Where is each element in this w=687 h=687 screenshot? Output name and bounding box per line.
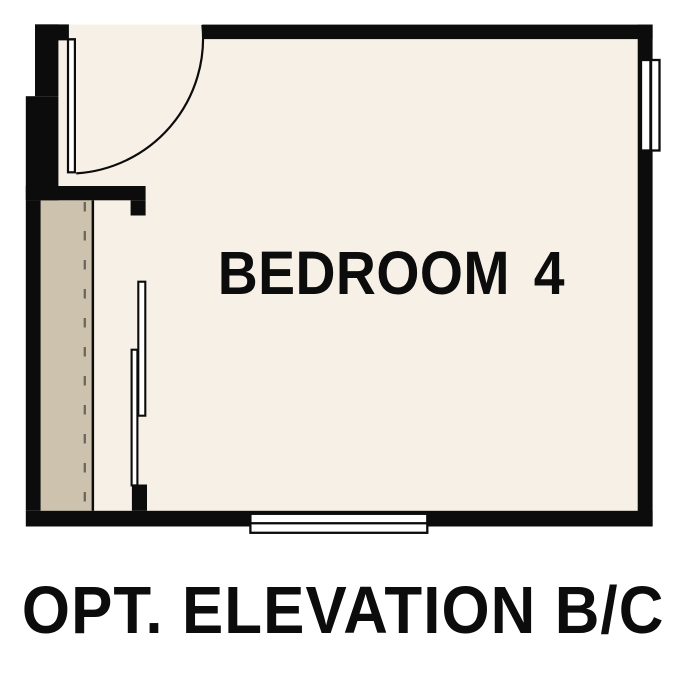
svg-text:OPT. ELEVATION B/C: OPT. ELEVATION B/C xyxy=(22,573,665,648)
svg-text:BEDROOM 4: BEDROOM 4 xyxy=(218,239,565,307)
